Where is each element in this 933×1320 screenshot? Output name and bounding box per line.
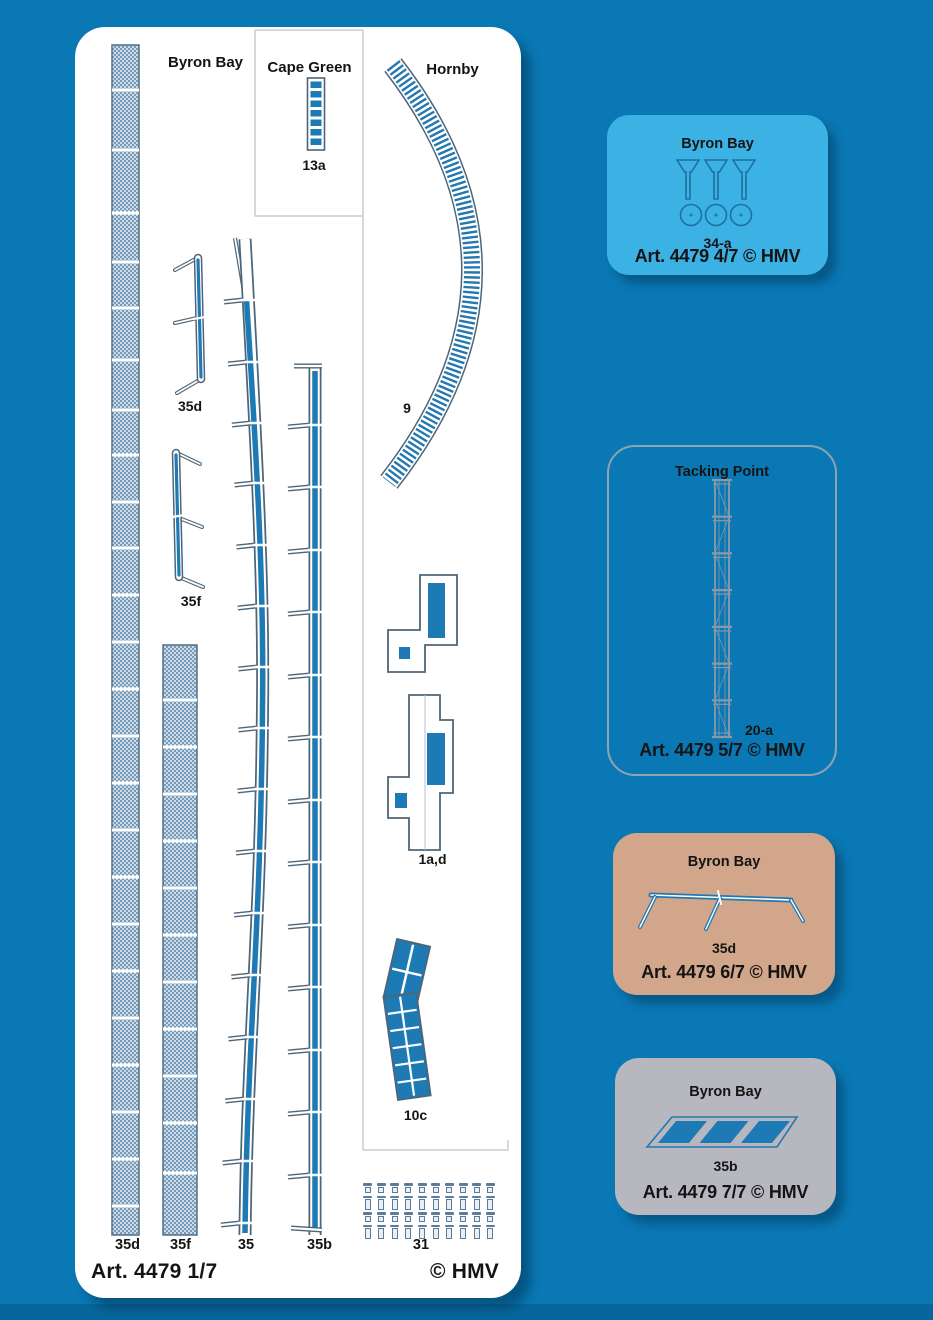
- screw-icon: [445, 1225, 454, 1239]
- screw-row: [363, 1196, 495, 1210]
- screw-row: [363, 1183, 495, 1193]
- scan-background: Byron Bay Cape Green Hornby 13a 9 35d 35…: [0, 0, 933, 1320]
- screw-icon: [459, 1183, 468, 1193]
- card-art-number: Art. 4479 7/7 © HMV: [615, 1182, 836, 1203]
- screw-icon: [431, 1196, 440, 1210]
- screw-icon: [377, 1183, 386, 1193]
- mast-20a-drawing: [609, 447, 835, 774]
- part-35f-strip: [163, 645, 197, 1235]
- screw-icon: [445, 1212, 454, 1222]
- bottom-label-35b: 35b: [297, 1237, 342, 1253]
- screw-icon: [459, 1225, 468, 1239]
- screw-icon: [472, 1196, 481, 1210]
- panel-strip: [647, 1117, 797, 1147]
- screw-icon: [418, 1225, 427, 1239]
- etched-sheet-6of7: Byron Bay 35d Art. 4479 6/7 © HMV: [613, 833, 835, 995]
- screw-icon: [404, 1225, 413, 1239]
- sheet-art-number: Art. 4479 1/7: [91, 1260, 217, 1284]
- screw-icon: [363, 1183, 372, 1193]
- etched-sheet-7of7: Byron Bay 35b Art. 4479 7/7 © HMV: [615, 1058, 836, 1215]
- screw-icon: [459, 1212, 468, 1222]
- screw-icon: [486, 1183, 495, 1193]
- bottom-label-35: 35: [225, 1237, 267, 1253]
- funnel-shapes: [677, 160, 755, 199]
- etched-sheet-main: Byron Bay Cape Green Hornby 13a 9 35d 35…: [75, 27, 521, 1298]
- screw-icon: [363, 1225, 372, 1239]
- part-35d-small: [175, 257, 206, 393]
- screw-icon: [486, 1212, 495, 1222]
- part-35-long-rail: [221, 238, 269, 1235]
- part-label-35f-small: 35f: [170, 593, 212, 609]
- screw-icon: [404, 1196, 413, 1210]
- region-label-cape-green: Cape Green: [267, 59, 352, 76]
- card-part-label: 35d: [613, 940, 835, 956]
- part-1ad-deck-pieces: [388, 575, 457, 850]
- screw-icon: [404, 1212, 413, 1222]
- card-title: Byron Bay: [607, 136, 828, 152]
- part-35b-long-rail: [288, 366, 322, 1235]
- screw-icon: [363, 1196, 372, 1210]
- screw-icon: [472, 1183, 481, 1193]
- screw-icon: [418, 1196, 427, 1210]
- card-part-label: 20-a: [745, 722, 785, 738]
- etched-parts-drawing: [75, 27, 521, 1298]
- screw-icon: [486, 1196, 495, 1210]
- card-title: Byron Bay: [615, 1084, 836, 1100]
- screw-icon: [472, 1212, 481, 1222]
- disc-shapes: [681, 205, 752, 226]
- screw-icon: [459, 1196, 468, 1210]
- screw-icon: [431, 1212, 440, 1222]
- part-13a-ladder: [308, 78, 325, 150]
- part-label-13a: 13a: [294, 157, 334, 173]
- screw-icon: [377, 1225, 386, 1239]
- region-label-hornby: Hornby: [420, 61, 485, 78]
- card-art-number: Art. 4479 6/7 © HMV: [613, 962, 835, 983]
- part-10c-bent-ladder: [384, 939, 431, 1100]
- screw-icon: [377, 1196, 386, 1210]
- screw-icon: [418, 1183, 427, 1193]
- bottom-label-35d: 35d: [105, 1237, 150, 1253]
- screw-icon: [445, 1196, 454, 1210]
- screw-icon: [472, 1225, 481, 1239]
- part-9-curved-band: [389, 65, 472, 482]
- lattice-mast: [712, 480, 732, 737]
- screw-row: [363, 1225, 495, 1239]
- part-label-35d-small: 35d: [169, 398, 211, 414]
- screw-icon: [390, 1196, 399, 1210]
- part-label-10c: 10c: [393, 1107, 438, 1123]
- screw-icon: [390, 1212, 399, 1222]
- etched-sheet-4of7: Byron Bay 34-a Art. 4479 4/7 © HMV: [607, 115, 828, 275]
- screw-row: [363, 1212, 495, 1222]
- screw-icon: [404, 1183, 413, 1193]
- card-title: Tacking Point: [609, 464, 835, 480]
- screw-icon: [431, 1225, 440, 1239]
- screw-icon: [418, 1212, 427, 1222]
- screw-icon: [363, 1212, 372, 1222]
- card-part-label: 35b: [615, 1158, 836, 1174]
- screw-icon: [390, 1183, 399, 1193]
- sheet-copyright: © HMV: [430, 1260, 499, 1284]
- scan-edge-shadow: [0, 1304, 933, 1320]
- card-art-number: Art. 4479 5/7 © HMV: [609, 740, 835, 761]
- bottom-label-31: 31: [401, 1237, 441, 1253]
- bottom-label-35f: 35f: [158, 1237, 203, 1253]
- screw-icon: [431, 1183, 440, 1193]
- railing-rail: [640, 891, 803, 929]
- screw-icon: [486, 1225, 495, 1239]
- screw-icon: [445, 1183, 454, 1193]
- etched-sheet-5of7: Tacking Point 20-a Art. 4479 5/7 © HMV: [607, 445, 837, 776]
- part-label-9: 9: [397, 400, 417, 416]
- card-title: Byron Bay: [613, 854, 835, 870]
- card-art-number: Art. 4479 4/7 © HMV: [607, 246, 828, 267]
- screws-grid: [363, 1183, 495, 1239]
- part-35f-small: [172, 452, 203, 587]
- screw-icon: [377, 1212, 386, 1222]
- screw-icon: [390, 1225, 399, 1239]
- part-35d-strip: [112, 45, 139, 1235]
- region-label-byron-bay: Byron Bay: [163, 54, 248, 71]
- part-label-1ad: 1a,d: [410, 851, 455, 867]
